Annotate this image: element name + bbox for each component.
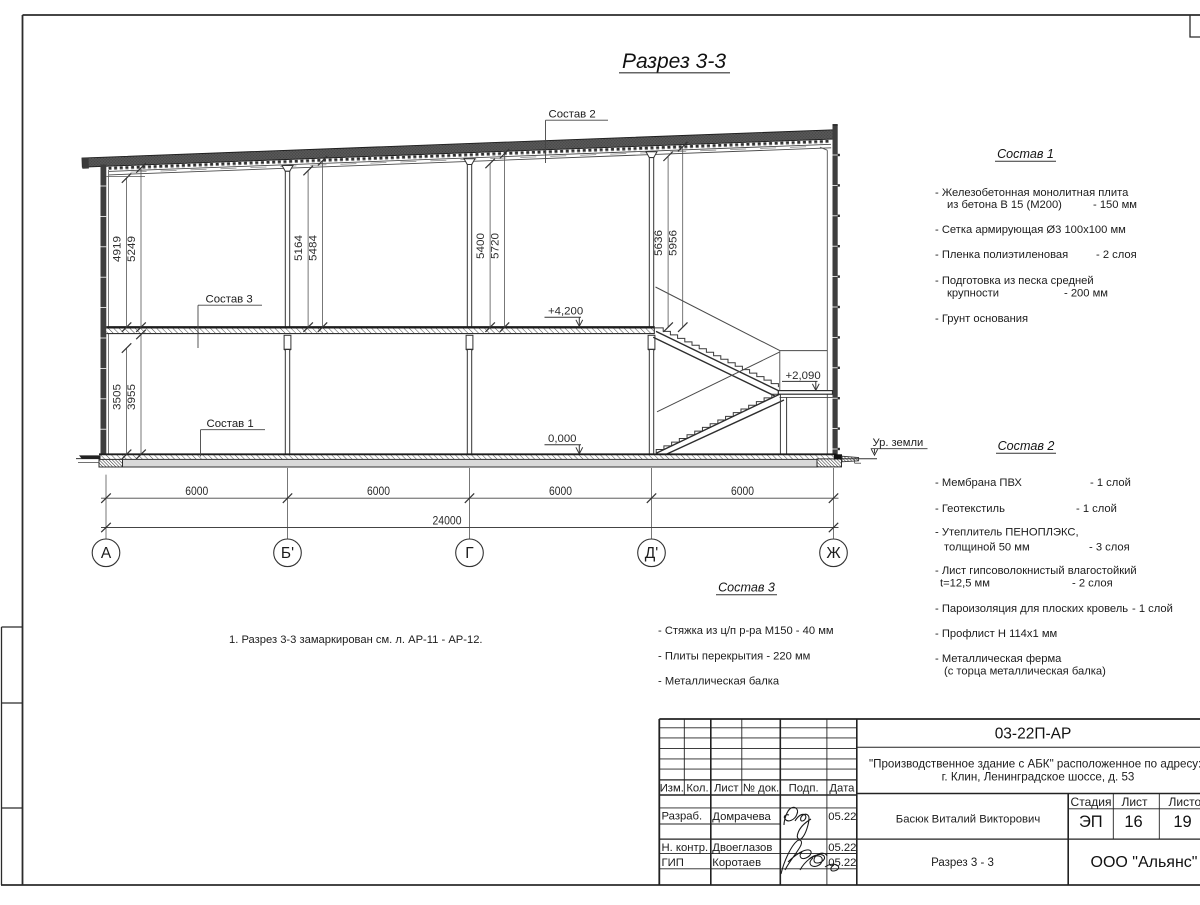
svg-text:Изм.: Изм. <box>660 782 684 794</box>
svg-text:- Профлист Н 114х1 мм: - Профлист Н 114х1 мм <box>935 628 1057 640</box>
svg-text:Домрачева: Домрачева <box>712 811 771 823</box>
svg-text:5956: 5956 <box>668 230 680 256</box>
svg-text:Д': Д' <box>645 545 658 562</box>
svg-text:- 150 мм: - 150 мм <box>1093 199 1137 211</box>
svg-text:- 1 слой: - 1 слой <box>1132 603 1173 615</box>
svg-text:Ж: Ж <box>826 545 841 562</box>
svg-text:Разрез 3-3: Разрез 3-3 <box>622 50 726 73</box>
svg-text:Разраб.: Разраб. <box>662 811 703 823</box>
svg-text:толщиной 50 мм: толщиной 50 мм <box>944 542 1030 554</box>
svg-text:6000: 6000 <box>367 485 390 498</box>
svg-text:Состав 1: Состав 1 <box>207 418 254 430</box>
svg-text:из бетона В 15 (М200): из бетона В 15 (М200) <box>947 199 1062 211</box>
svg-text:- Лист гипсоволокнистый влагос: - Лист гипсоволокнистый влагостойкий <box>935 565 1137 577</box>
svg-text:- Металлическая балка: - Металлическая балка <box>658 676 780 688</box>
svg-text:(с торца металлическая балка): (с торца металлическая балка) <box>944 666 1106 678</box>
svg-text:Коротаев: Коротаев <box>712 857 761 869</box>
svg-text:Подп.: Подп. <box>789 782 819 794</box>
svg-text:19: 19 <box>1173 813 1191 831</box>
svg-text:6000: 6000 <box>731 485 754 498</box>
svg-text:Н. контр.: Н. контр. <box>662 842 709 854</box>
svg-text:Ур. земли: Ур. земли <box>873 437 924 449</box>
svg-text:- 200 мм: - 200 мм <box>1064 288 1108 300</box>
svg-text:- 1 слой: - 1 слой <box>1076 503 1117 515</box>
svg-text:5164: 5164 <box>293 235 305 261</box>
svg-text:ГИП: ГИП <box>662 857 684 869</box>
svg-text:5484: 5484 <box>307 235 319 261</box>
svg-text:05.22: 05.22 <box>828 842 856 854</box>
svg-text:Состав 2: Состав 2 <box>998 439 1055 453</box>
svg-text:Листов: Листов <box>1169 795 1200 809</box>
svg-text:- Утеплитель ПЕНОПЛЭКС,: - Утеплитель ПЕНОПЛЭКС, <box>935 527 1079 539</box>
svg-text:Г: Г <box>465 545 474 562</box>
svg-text:- Железобетонная монолитная п: - Железобетонная монолитная плита <box>935 187 1129 199</box>
svg-text:4919: 4919 <box>111 236 123 262</box>
svg-text:+4,200: +4,200 <box>548 306 583 318</box>
svg-text:6000: 6000 <box>185 485 208 498</box>
svg-text:крупности: крупности <box>947 288 999 300</box>
svg-text:3955: 3955 <box>126 384 138 410</box>
svg-text:Состав 3: Состав 3 <box>718 581 775 595</box>
svg-text:Басюк Виталий Викторович: Басюк Виталий Викторович <box>896 814 1041 826</box>
svg-text:05.22: 05.22 <box>828 857 856 869</box>
svg-text:А: А <box>101 545 112 562</box>
svg-text:03-22П-АР: 03-22П-АР <box>995 726 1072 743</box>
svg-text:- Грунт основания: - Грунт основания <box>935 313 1028 325</box>
svg-text:- Геотекстиль: - Геотекстиль <box>935 503 1005 515</box>
svg-text:Состав 3: Состав 3 <box>206 294 253 306</box>
svg-text:Лист: Лист <box>1121 795 1148 809</box>
svg-text:+2,090: +2,090 <box>786 370 821 382</box>
svg-text:- 3 слоя: - 3 слоя <box>1089 542 1130 554</box>
svg-text:- Пароизоляция для плоских кро: - Пароизоляция для плоских кровель <box>935 603 1128 615</box>
svg-text:5636: 5636 <box>653 230 665 256</box>
svg-text:ООО "Альянс": ООО "Альянс" <box>1091 854 1198 871</box>
svg-text:Разрез 3 - 3: Разрез 3 - 3 <box>931 857 994 869</box>
svg-text:24000: 24000 <box>433 515 462 528</box>
svg-text:- Мембрана ПВХ: - Мембрана ПВХ <box>935 477 1022 489</box>
svg-text:5400: 5400 <box>475 233 487 259</box>
svg-text:- Сетка армирующая Ø3 100х100: - Сетка армирующая Ø3 100х100 мм <box>935 224 1126 236</box>
svg-text:- Подготовка из песка средней: - Подготовка из песка средней <box>935 275 1094 287</box>
svg-text:0,000: 0,000 <box>548 433 577 445</box>
svg-text:Кол.: Кол. <box>686 782 708 794</box>
svg-text:- 2 слоя: - 2 слоя <box>1072 578 1113 590</box>
svg-text:Двоеглазов: Двоеглазов <box>712 842 772 854</box>
svg-text:- Металлическая ферма: - Металлическая ферма <box>935 653 1062 665</box>
svg-text:№ док.: № док. <box>743 782 779 794</box>
svg-text:16: 16 <box>1124 813 1142 831</box>
svg-text:5720: 5720 <box>489 233 501 259</box>
svg-text:г. Клин, Ленинградское шоссе,: г. Клин, Ленинградское шоссе, д. 53 <box>942 771 1135 784</box>
svg-text:Дата: Дата <box>829 782 855 794</box>
svg-text:t=12,5 мм: t=12,5 мм <box>940 578 990 590</box>
svg-text:Б': Б' <box>281 545 294 562</box>
svg-text:- Плиты перекрытия - 220 мм: - Плиты перекрытия - 220 мм <box>658 651 810 663</box>
svg-text:Состав 1: Состав 1 <box>997 147 1054 161</box>
svg-text:05.22: 05.22 <box>828 811 856 823</box>
svg-text:1. Разрез 3-3 замаркирован см.: 1. Разрез 3-3 замаркирован см. л. АР-11 … <box>229 634 483 646</box>
svg-text:- Пленка полиэтиленовая: - Пленка полиэтиленовая <box>935 249 1068 261</box>
svg-text:3505: 3505 <box>111 384 123 410</box>
svg-text:- 1 слой: - 1 слой <box>1090 477 1131 489</box>
svg-text:- 2 слоя: - 2 слоя <box>1096 249 1137 261</box>
svg-text:- Стяжка из ц/п р-ра М150 - 40: - Стяжка из ц/п р-ра М150 - 40 мм <box>658 625 834 637</box>
svg-text:Состав 2: Состав 2 <box>549 109 596 121</box>
svg-text:Стадия: Стадия <box>1071 795 1112 809</box>
svg-text:Лист: Лист <box>714 782 739 794</box>
svg-text:ЭП: ЭП <box>1079 813 1103 831</box>
svg-text:6000: 6000 <box>549 485 572 498</box>
svg-text:"Производственное здание с АБК: "Производственное здание с АБК" располож… <box>869 757 1200 770</box>
svg-text:5249: 5249 <box>126 236 138 262</box>
